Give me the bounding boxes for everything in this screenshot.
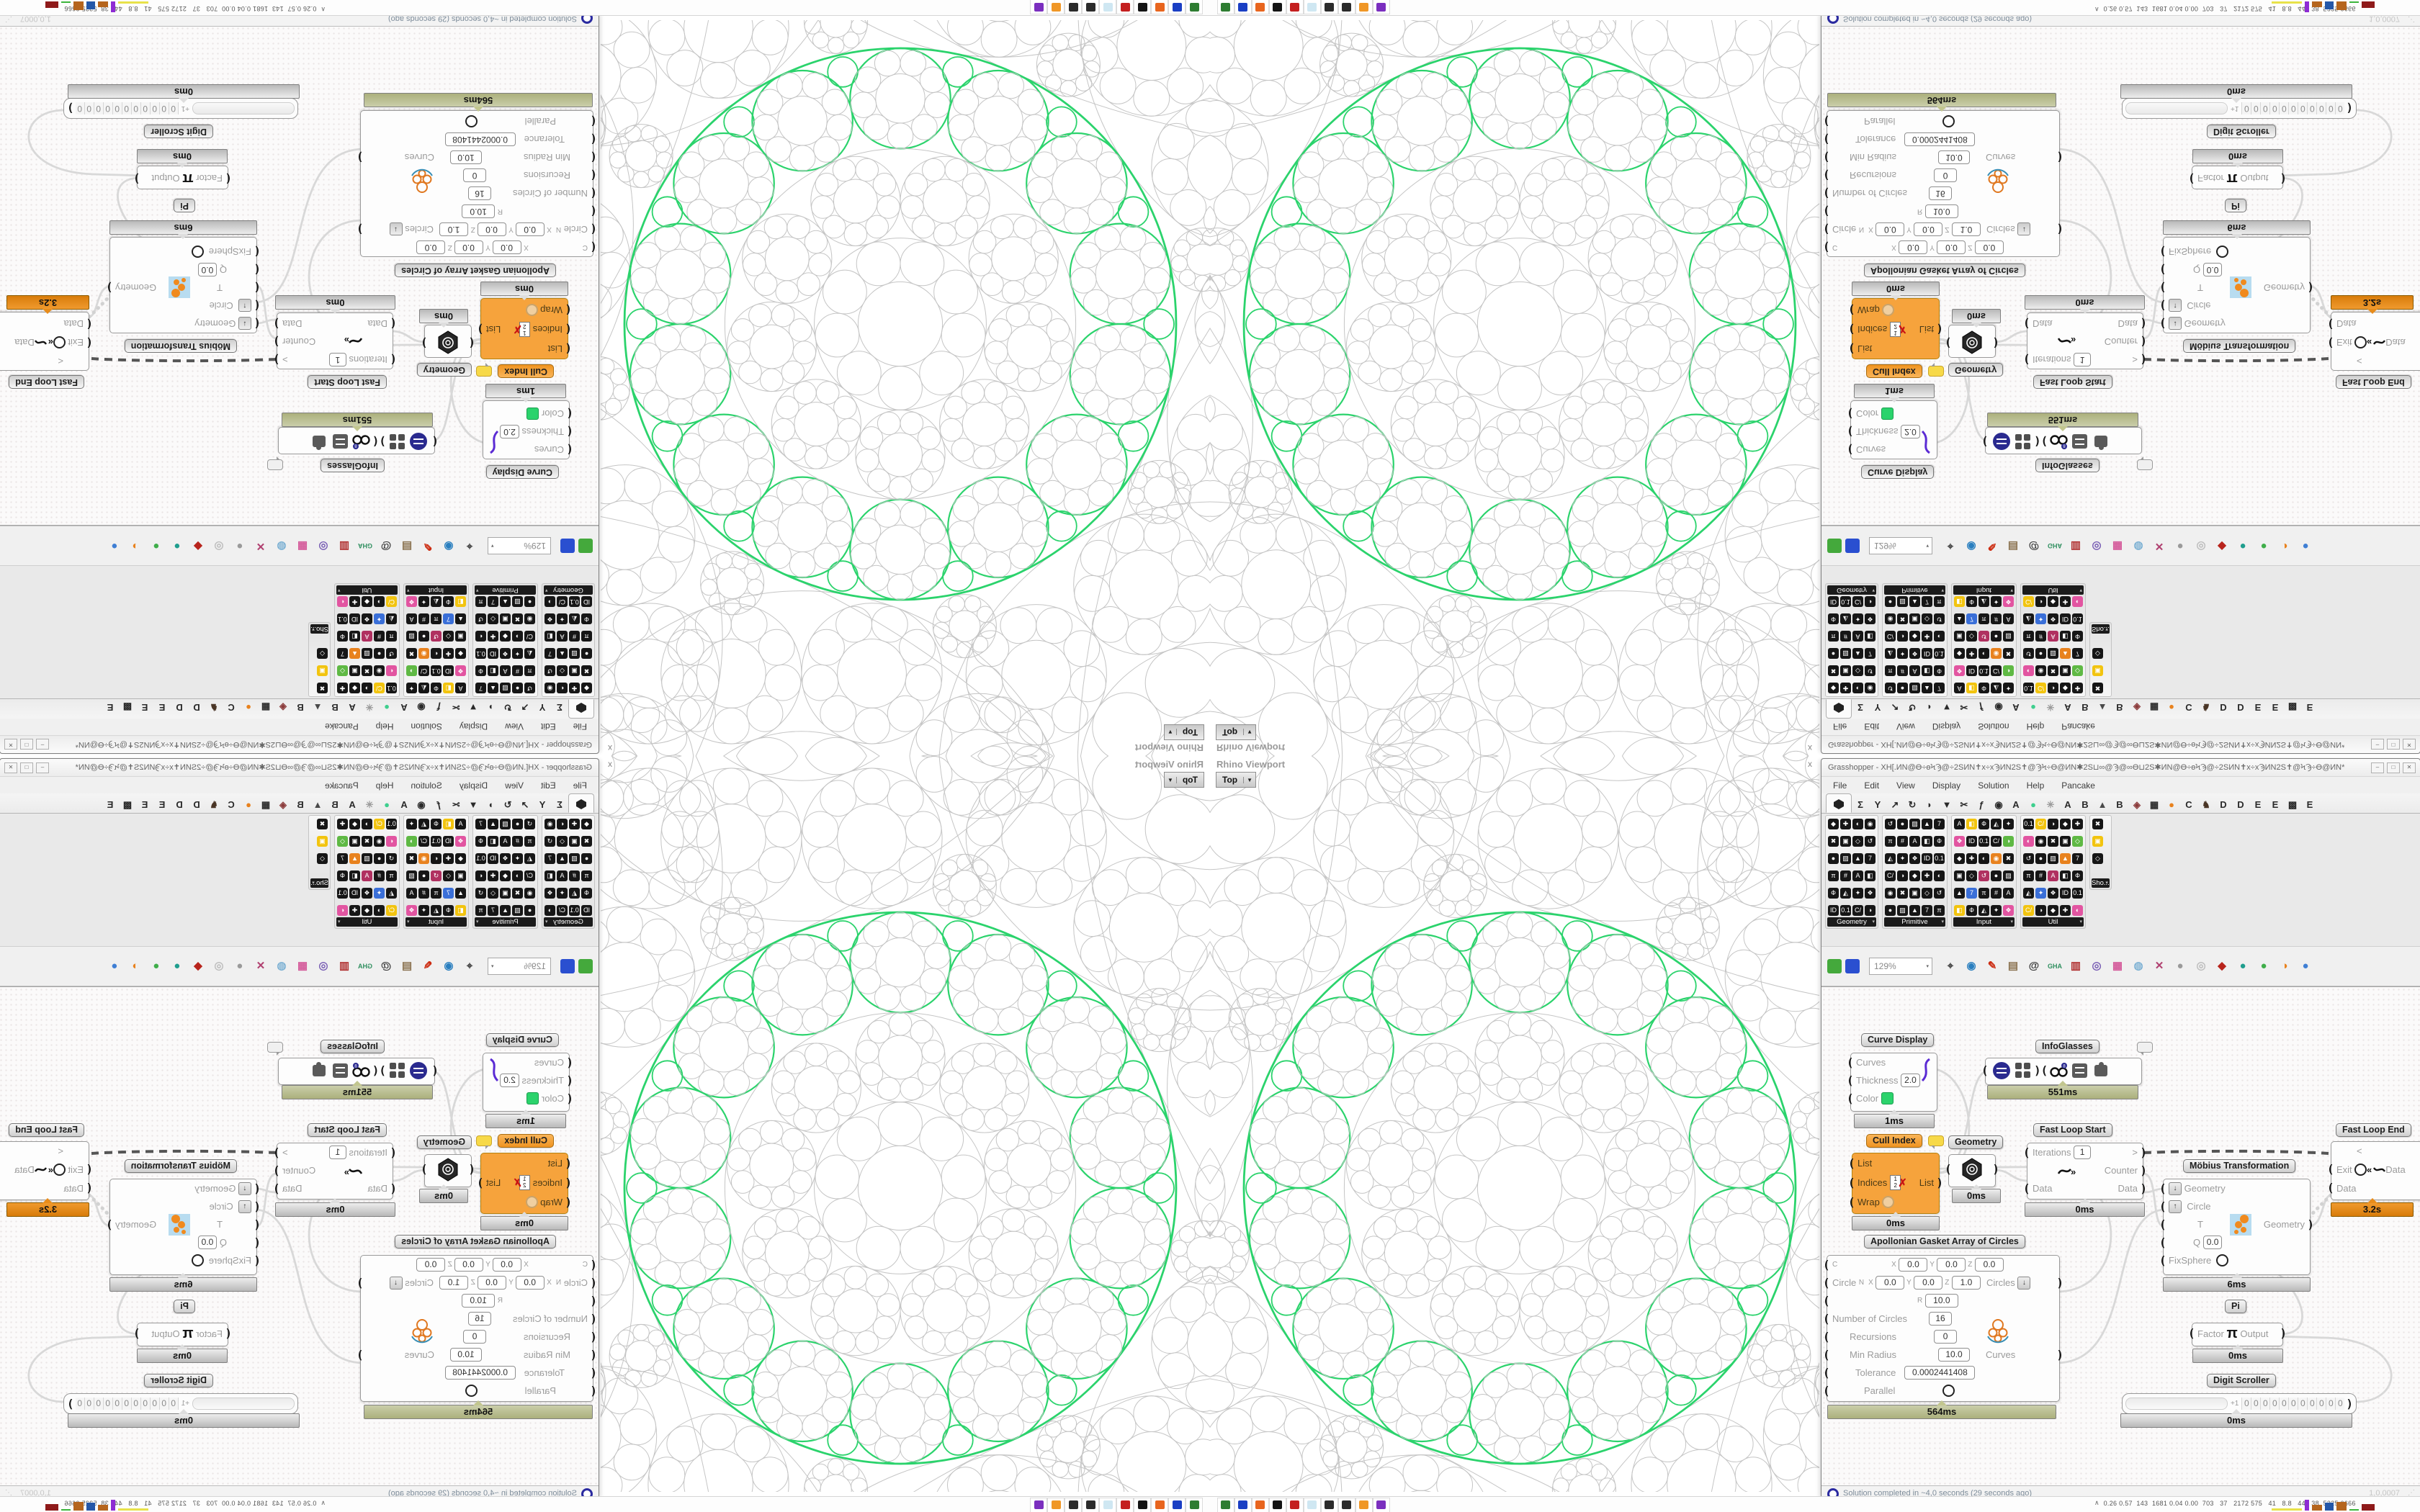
component-icon[interactable]: ID bbox=[349, 613, 360, 624]
component-icon[interactable]: ▣ bbox=[500, 888, 511, 899]
toolbar-icon-17[interactable]: ● bbox=[2297, 537, 2314, 554]
component-icon[interactable]: # bbox=[569, 631, 580, 642]
component-icon[interactable]: Ф bbox=[2072, 870, 2083, 881]
thickness-field[interactable]: 2.0 bbox=[1901, 1074, 1920, 1087]
taskbar-app-button[interactable] bbox=[1030, 1498, 1047, 1512]
tab-3[interactable]: ↗ bbox=[516, 699, 534, 715]
node-label-infoglasses[interactable]: InfoGlasses bbox=[2035, 459, 2099, 472]
component-icon[interactable]: Ф bbox=[475, 665, 486, 676]
component-icon[interactable]: Ф bbox=[581, 888, 592, 899]
rhino-viewport[interactable]: Rhino Viewport x Top ▼ bbox=[601, 756, 1210, 1492]
component-icon[interactable]: ◇ bbox=[443, 870, 454, 881]
toolbar-icon-9[interactable]: ◍ bbox=[2130, 958, 2147, 975]
component-icon[interactable]: ✖ bbox=[362, 836, 372, 847]
component-icon[interactable]: ✖ bbox=[406, 648, 417, 659]
component-icon[interactable]: A bbox=[1852, 870, 1863, 881]
taskbar-app-button[interactable] bbox=[1134, 1498, 1151, 1512]
iterations-field[interactable]: 1 bbox=[2074, 353, 2091, 366]
node-fast-loop-start[interactable]: (Iterations 1 >) » Counter) (Data Data) bbox=[277, 312, 393, 369]
component-icon[interactable]: ◐ bbox=[337, 596, 348, 607]
tab-27[interactable]: E bbox=[2301, 699, 2318, 715]
component-icon[interactable]: ▨ bbox=[569, 853, 580, 864]
tab-19[interactable]: ● bbox=[2163, 699, 2180, 715]
component-icon[interactable]: ▣ bbox=[349, 836, 360, 847]
component-icon[interactable]: ✦ bbox=[1852, 613, 1863, 624]
component-icon[interactable]: ◭ bbox=[418, 683, 429, 693]
taskbar-app-button[interactable] bbox=[1116, 1498, 1134, 1512]
goggles-icon[interactable]: 8 bbox=[352, 433, 371, 451]
component-icon[interactable]: ◇ bbox=[1922, 888, 1932, 899]
component-icon[interactable]: ID bbox=[488, 853, 498, 864]
component-icon[interactable]: ◐ bbox=[475, 631, 486, 642]
toolbar-icon-2[interactable]: ✎ bbox=[1984, 537, 2001, 554]
component-icon[interactable]: # bbox=[569, 870, 580, 881]
digit-cell[interactable]: 0 bbox=[2326, 102, 2335, 114]
component-icon[interactable]: ✚ bbox=[1922, 870, 1932, 881]
component-icon[interactable]: 7 bbox=[337, 648, 348, 659]
digit-cell[interactable]: 0 bbox=[2288, 1398, 2298, 1410]
tab-1[interactable]: Σ bbox=[551, 699, 568, 715]
min-radius-field[interactable]: 10.0 bbox=[450, 150, 482, 164]
digit-cell[interactable]: 0 bbox=[2288, 102, 2298, 114]
menu-item-help[interactable]: Help bbox=[2027, 780, 2045, 791]
component-icon[interactable]: ✚ bbox=[569, 819, 580, 829]
close-button[interactable]: ✕ bbox=[2403, 739, 2416, 750]
component-icon[interactable]: ▲ bbox=[1954, 613, 1965, 624]
component-icon[interactable]: ◭ bbox=[1840, 888, 1851, 899]
minimize-button[interactable]: – bbox=[2371, 739, 2384, 750]
component-icon[interactable]: ◭ bbox=[2023, 888, 2034, 899]
component-icon[interactable]: 7 bbox=[1934, 683, 1945, 693]
toolbar-icon-12[interactable]: ◎ bbox=[2192, 537, 2210, 554]
component-icon[interactable]: ↺ bbox=[431, 631, 442, 642]
component-icon[interactable]: ▨ bbox=[406, 870, 417, 881]
open-file-icon[interactable] bbox=[578, 539, 593, 553]
component-icon[interactable]: ◭ bbox=[431, 905, 442, 916]
tab-2[interactable]: Y bbox=[534, 797, 551, 813]
toolbar-icon-14[interactable]: ● bbox=[2234, 537, 2251, 554]
component-icon[interactable]: ✖ bbox=[1897, 613, 1908, 624]
digit-cell[interactable]: 0 bbox=[94, 1398, 104, 1410]
cz-field[interactable]: 0.0 bbox=[1975, 1258, 2004, 1272]
palette-group-label[interactable]: Input▾ bbox=[405, 917, 467, 927]
tab-1[interactable]: Σ bbox=[1852, 699, 1869, 715]
tab-17[interactable]: ◈ bbox=[2128, 797, 2146, 813]
component-icon[interactable]: ✖ bbox=[1897, 888, 1908, 899]
puzzle-icon[interactable] bbox=[309, 433, 328, 451]
component-icon[interactable]: ◆ bbox=[500, 631, 511, 642]
exit-toggle[interactable] bbox=[53, 1164, 66, 1176]
component-icon[interactable]: ID bbox=[2060, 888, 2071, 899]
tab-17[interactable]: ◈ bbox=[2128, 699, 2146, 715]
component-icon[interactable]: ❖ bbox=[1909, 648, 1920, 659]
digit-cell[interactable]: 0 bbox=[160, 102, 169, 114]
tab-0[interactable] bbox=[1826, 793, 1852, 813]
view-selector-button[interactable]: Top ▼ bbox=[1216, 724, 1256, 740]
tab-0[interactable] bbox=[568, 793, 594, 813]
palette-group-label[interactable]: Geometry▾ bbox=[544, 585, 593, 595]
component-icon[interactable]: ▣ bbox=[455, 870, 466, 881]
component-icon[interactable]: ◇ bbox=[488, 888, 498, 899]
taskbar-app-button[interactable] bbox=[1047, 0, 1065, 14]
node-label-mobius[interactable]: Möbius Transformation bbox=[125, 339, 237, 353]
component-icon[interactable]: ❖ bbox=[544, 613, 555, 624]
component-icon[interactable]: ● bbox=[374, 648, 385, 659]
color-swatch[interactable] bbox=[526, 408, 539, 420]
component-icon[interactable]: ✖ bbox=[512, 888, 523, 899]
info-disc-icon[interactable] bbox=[409, 1061, 428, 1080]
toolbar-icon-10[interactable]: ✕ bbox=[2151, 537, 2168, 554]
component-icon[interactable]: ▲ bbox=[488, 819, 498, 829]
taskbar-app-button[interactable] bbox=[1373, 0, 1390, 14]
component-icon[interactable]: ID bbox=[581, 596, 592, 607]
component-icon[interactable]: 7 bbox=[1922, 596, 1932, 607]
toolbar-icon-7[interactable]: ◎ bbox=[2088, 537, 2105, 554]
component-icon[interactable]: ◑ bbox=[2048, 683, 2058, 693]
goggles-icon[interactable]: 8 bbox=[352, 1061, 371, 1080]
component-icon[interactable]: ▨ bbox=[362, 648, 372, 659]
taskbar-app-button[interactable] bbox=[1065, 1498, 1082, 1512]
component-icon[interactable]: # bbox=[2035, 631, 2046, 642]
component-icon[interactable]: ◭ bbox=[569, 888, 580, 899]
exit-toggle[interactable] bbox=[53, 337, 66, 349]
component-icon[interactable]: ✦ bbox=[512, 648, 523, 659]
component-icon[interactable]: 7 bbox=[1966, 888, 1977, 899]
cx-field[interactable]: 0.0 bbox=[493, 1258, 521, 1272]
component-icon[interactable]: ◐ bbox=[2072, 596, 2083, 607]
component-icon[interactable]: ◉ bbox=[418, 648, 429, 659]
node-curve-display[interactable]: (Curves (Thickness 2.0 (Color bbox=[483, 400, 570, 459]
component-icon[interactable]: A bbox=[406, 613, 417, 624]
node-pi[interactable]: (Factor π Output) bbox=[137, 1323, 228, 1346]
digit-cell[interactable]: 0 bbox=[104, 102, 113, 114]
component-icon[interactable]: ▨ bbox=[1840, 853, 1851, 864]
wrap-toggle[interactable] bbox=[526, 1196, 538, 1208]
menu-item-file[interactable]: File bbox=[1833, 780, 1847, 791]
toolbar-icon-5[interactable]: GHA bbox=[2046, 958, 2063, 975]
node-label-geometry[interactable]: Geometry bbox=[417, 363, 472, 377]
component-icon[interactable]: π bbox=[431, 613, 442, 624]
node-label-curve-display[interactable]: Curve Display bbox=[486, 1033, 559, 1047]
component-icon[interactable]: ● bbox=[1897, 819, 1908, 829]
node-label-cull-index[interactable]: Cull Index bbox=[498, 364, 554, 378]
node-label-curve-display[interactable]: Curve Display bbox=[1861, 465, 1934, 479]
component-icon[interactable]: ✚ bbox=[349, 905, 360, 916]
component-icon[interactable]: ◐ bbox=[386, 665, 397, 676]
digit-cell[interactable]: 0 bbox=[2269, 102, 2279, 114]
component-icon[interactable]: ● bbox=[1885, 596, 1896, 607]
component-icon[interactable]: C/ bbox=[374, 683, 385, 693]
component-icon[interactable]: ▣ bbox=[1909, 613, 1920, 624]
zoom-input[interactable]: 129%▾ bbox=[488, 537, 551, 554]
component-icon[interactable]: ◐ bbox=[431, 648, 442, 659]
arrow-down-button[interactable]: ↓ bbox=[238, 318, 251, 330]
component-icon[interactable]: ◑ bbox=[544, 905, 555, 916]
component-icon[interactable]: π bbox=[1934, 596, 1945, 607]
tab-18[interactable]: ▦ bbox=[2146, 797, 2163, 813]
menu-item-solution[interactable]: Solution bbox=[411, 780, 442, 791]
component-icon[interactable]: ◑ bbox=[1865, 596, 1875, 607]
component-icon[interactable]: ID bbox=[443, 836, 454, 847]
component-icon[interactable]: ◑ bbox=[2035, 905, 2046, 916]
component-icon[interactable]: ▲ bbox=[455, 888, 466, 899]
component-icon[interactable]: 0.1 bbox=[431, 836, 442, 847]
taskbar-app-button[interactable] bbox=[1186, 1498, 1203, 1512]
component-icon[interactable]: # bbox=[418, 613, 429, 624]
tab-3[interactable]: ↗ bbox=[1886, 797, 1904, 813]
taskbar-app-button[interactable] bbox=[1082, 0, 1099, 14]
component-icon[interactable]: Ф bbox=[443, 596, 454, 607]
component-icon[interactable]: A bbox=[557, 870, 568, 881]
component-icon[interactable]: Ф bbox=[1978, 819, 1989, 829]
palette-group-label[interactable]: Util▾ bbox=[336, 585, 398, 595]
component-icon[interactable]: ◧ bbox=[1954, 596, 1965, 607]
component-icon[interactable]: 0.1 bbox=[475, 853, 486, 864]
toolbar-icon-5[interactable]: GHA bbox=[357, 958, 374, 975]
component-icon[interactable]: ● bbox=[524, 596, 535, 607]
component-icon[interactable]: ❖ bbox=[544, 888, 555, 899]
rhino-viewport[interactable]: Rhino Viewport x Top ▼ bbox=[1210, 756, 1819, 1492]
parallel-toggle[interactable] bbox=[465, 115, 478, 127]
chevron-up-icon[interactable]: ∧ bbox=[2094, 1499, 2099, 1507]
digit-cell[interactable]: 0 bbox=[2260, 1398, 2269, 1410]
component-icon[interactable]: 7 bbox=[475, 683, 486, 693]
tab-19[interactable]: ● bbox=[240, 699, 257, 715]
component-icon[interactable]: ◐ bbox=[2072, 905, 2083, 916]
menu-item-display[interactable]: Display bbox=[1932, 780, 1960, 791]
tab-12[interactable]: ✳ bbox=[361, 699, 378, 715]
component-icon[interactable]: ✦ bbox=[1897, 853, 1908, 864]
component-icon[interactable]: A bbox=[1852, 631, 1863, 642]
component-icon[interactable]: C/ bbox=[1885, 631, 1896, 642]
digit-cell[interactable]: 0 bbox=[113, 1398, 122, 1410]
node-label-fast-loop-end[interactable]: Fast Loop End bbox=[9, 375, 84, 389]
digit-cell[interactable]: 0 bbox=[76, 1398, 85, 1410]
component-icon[interactable]: ◐ bbox=[1852, 683, 1863, 693]
component-icon[interactable]: ✦ bbox=[1991, 596, 2002, 607]
view-selector-button[interactable]: Top ▼ bbox=[1164, 724, 1204, 740]
tab-13[interactable]: A bbox=[344, 699, 361, 715]
component-icon[interactable]: ID bbox=[1922, 853, 1932, 864]
component-icon[interactable]: ▣ bbox=[1840, 836, 1851, 847]
digit-cell[interactable]: 0 bbox=[160, 1398, 169, 1410]
component-icon[interactable]: π bbox=[1978, 888, 1989, 899]
component-icon[interactable]: ● bbox=[1828, 853, 1839, 864]
cz-field[interactable]: 0.0 bbox=[1975, 240, 2004, 254]
component-icon[interactable]: A bbox=[500, 836, 511, 847]
recursions-field[interactable]: 0 bbox=[463, 1330, 486, 1344]
chevron-up-icon[interactable]: ∧ bbox=[321, 5, 326, 13]
component-icon[interactable]: ◆ bbox=[1909, 631, 1920, 642]
menu-item-help[interactable]: Help bbox=[376, 780, 394, 791]
parallel-toggle[interactable] bbox=[1942, 1385, 1955, 1397]
component-icon[interactable]: C/ bbox=[1991, 836, 2002, 847]
q-field[interactable]: 0.0 bbox=[198, 263, 218, 276]
component-icon[interactable]: ◉ bbox=[524, 613, 535, 624]
digit-cell[interactable]: 0 bbox=[85, 1398, 94, 1410]
taskbar-app-button[interactable] bbox=[1269, 0, 1286, 14]
toolbar-icon-16[interactable]: ◑ bbox=[2276, 958, 2293, 975]
component-icon[interactable]: 7 bbox=[443, 888, 454, 899]
tab-9[interactable]: ◉ bbox=[413, 797, 430, 813]
info-disc-icon[interactable] bbox=[1992, 1061, 2011, 1080]
component-icon[interactable]: ◧ bbox=[544, 631, 555, 642]
palette-group-label[interactable]: Util▾ bbox=[336, 917, 398, 927]
tab-7[interactable]: ✂ bbox=[447, 699, 465, 715]
node-fast-loop-end[interactable]: < (Exit « Data) (Data bbox=[2331, 312, 2420, 371]
info-disc-icon[interactable] bbox=[1992, 433, 2011, 451]
component-icon[interactable]: ◇ bbox=[317, 648, 328, 659]
palette-group-label[interactable]: Input▾ bbox=[1953, 917, 2015, 927]
component-icon[interactable]: 0.1 bbox=[475, 648, 486, 659]
component-icon[interactable]: ↺ bbox=[524, 683, 535, 693]
node-cull-index[interactable]: (List (Indices 12 ✗ List) (Wrap bbox=[480, 298, 568, 359]
component-icon[interactable]: ✚ bbox=[2072, 819, 2083, 829]
node-geometry-param[interactable]: ( ) bbox=[424, 325, 472, 358]
component-icon[interactable]: ◉ bbox=[544, 819, 555, 829]
titlebar[interactable]: Grasshopper - XH[.ИN@Ө÷өϞϠ@÷2SИN✝x÷xϠИN2… bbox=[1821, 735, 2420, 753]
tab-12[interactable]: ✳ bbox=[2042, 699, 2059, 715]
tab-4[interactable]: ↻ bbox=[1904, 797, 1921, 813]
tab-5[interactable]: ◗ bbox=[482, 699, 499, 715]
node-label-fast-loop-start[interactable]: Fast Loop Start bbox=[2033, 375, 2112, 389]
titlebar[interactable]: Grasshopper - XH[.ИN@Ө÷өϞϠ@÷2SИN✝x÷xϠИN2… bbox=[0, 759, 599, 777]
component-icon[interactable]: ◧ bbox=[544, 870, 555, 881]
component-icon[interactable]: Ф bbox=[581, 613, 592, 624]
taskbar-app-button[interactable] bbox=[1134, 0, 1151, 14]
open-file-icon[interactable] bbox=[1827, 539, 1842, 553]
component-icon[interactable]: ◧ bbox=[455, 596, 466, 607]
component-icon[interactable]: ▣ bbox=[1840, 665, 1851, 676]
component-icon[interactable]: ◐ bbox=[557, 819, 568, 829]
menu-item-view[interactable]: View bbox=[1896, 780, 1915, 791]
component-icon[interactable]: ● bbox=[581, 853, 592, 864]
toolbar-icon-6[interactable]: ▥ bbox=[336, 958, 353, 975]
tab-27[interactable]: E bbox=[102, 797, 119, 813]
component-icon[interactable]: ◆ bbox=[362, 905, 372, 916]
tab-15[interactable]: ▲ bbox=[2094, 699, 2111, 715]
taskbar-app-button[interactable] bbox=[1082, 1498, 1099, 1512]
toolbar-icon-12[interactable]: ◎ bbox=[210, 537, 228, 554]
toolbar-icon-14[interactable]: ● bbox=[169, 958, 186, 975]
component-icon[interactable]: ◉ bbox=[544, 683, 555, 693]
tab-0[interactable] bbox=[1826, 699, 1852, 719]
component-icon[interactable]: ◇ bbox=[557, 836, 568, 847]
component-icon[interactable]: ▨ bbox=[406, 631, 417, 642]
component-icon[interactable]: Ф bbox=[337, 870, 348, 881]
component-icon[interactable]: ID bbox=[581, 905, 592, 916]
component-icon[interactable]: ◑ bbox=[2035, 596, 2046, 607]
menu-item-file[interactable]: File bbox=[573, 722, 587, 732]
tab-0[interactable] bbox=[568, 699, 594, 719]
tab-11[interactable]: ● bbox=[2025, 797, 2042, 813]
component-icon[interactable]: ↺ bbox=[544, 665, 555, 676]
component-icon[interactable]: π bbox=[581, 631, 592, 642]
toolbar-icon-0[interactable]: ⌖ bbox=[1942, 958, 1959, 975]
node-fast-loop-start[interactable]: (Iterations 1 >) » Counter) (Data Data) bbox=[277, 1143, 393, 1200]
palette-group-label[interactable]: Sho...▾ bbox=[2092, 878, 2110, 888]
canvas[interactable]: Curve Display (Curves (Thickness 2.0 (Co… bbox=[1821, 27, 2420, 526]
component-icon[interactable]: π bbox=[1828, 631, 1839, 642]
cx-field[interactable]: 0.0 bbox=[1899, 1258, 1927, 1272]
component-icon[interactable]: 7 bbox=[1865, 853, 1875, 864]
toolbar-icon-12[interactable]: ◎ bbox=[2192, 958, 2210, 975]
component-icon[interactable]: ID bbox=[1828, 905, 1839, 916]
tab-7[interactable]: ✂ bbox=[447, 797, 465, 813]
menu-item-display[interactable]: Display bbox=[460, 722, 488, 732]
toolbar-icon-0[interactable]: ⌖ bbox=[461, 537, 478, 554]
component-icon[interactable]: ▨ bbox=[512, 905, 523, 916]
num-circles-field[interactable]: 16 bbox=[1929, 186, 1952, 200]
taskbar-app-button[interactable] bbox=[1151, 1498, 1168, 1512]
component-icon[interactable]: # bbox=[374, 870, 385, 881]
node-fast-loop-start[interactable]: (Iterations 1 >) » Counter) (Data Data) bbox=[2027, 312, 2143, 369]
digit-cell[interactable]: 0 bbox=[2251, 102, 2260, 114]
component-icon[interactable]: ● bbox=[1991, 870, 2002, 881]
tab-5[interactable]: ◗ bbox=[1921, 699, 1938, 715]
component-icon[interactable]: ◭ bbox=[386, 613, 397, 624]
node-pi[interactable]: (Factor π Output) bbox=[137, 166, 228, 189]
node-label-geometry[interactable]: Geometry bbox=[1948, 1135, 2003, 1149]
arrow-up-button[interactable]: ↑ bbox=[238, 1200, 251, 1213]
taskbar-app-button[interactable] bbox=[1304, 0, 1321, 14]
component-icon[interactable]: ◧ bbox=[455, 905, 466, 916]
toolbar-icon-15[interactable]: ● bbox=[2255, 958, 2272, 975]
taskbar-app-button[interactable] bbox=[1269, 1498, 1286, 1512]
toolbar-icon-0[interactable]: ⌖ bbox=[461, 958, 478, 975]
component-icon[interactable]: C/ bbox=[386, 905, 397, 916]
component-icon[interactable]: π bbox=[1885, 665, 1896, 676]
component-icon[interactable]: ◉ bbox=[1991, 853, 2002, 864]
component-icon[interactable]: ◐ bbox=[2023, 665, 2034, 676]
node-label-geometry[interactable]: Geometry bbox=[417, 1135, 472, 1149]
num-circles-field[interactable]: 16 bbox=[1929, 1312, 1952, 1326]
tab-20[interactable]: C bbox=[223, 699, 240, 715]
node-label-apollonian[interactable]: Apollonian Gasket Array of Circles bbox=[395, 264, 556, 277]
tab-9[interactable]: ◉ bbox=[1990, 797, 2007, 813]
toolbar-icon-10[interactable]: ✕ bbox=[252, 537, 269, 554]
component-icon[interactable]: π bbox=[1978, 613, 1989, 624]
component-icon[interactable]: A bbox=[362, 631, 372, 642]
toolbar-icon-13[interactable]: ◆ bbox=[2213, 537, 2231, 554]
component-icon[interactable]: ✦ bbox=[2035, 613, 2046, 624]
wrap-toggle[interactable] bbox=[526, 304, 538, 316]
component-icon[interactable]: ▨ bbox=[2048, 853, 2058, 864]
component-icon[interactable]: ▣ bbox=[349, 665, 360, 676]
canvas[interactable]: Curve Display (Curves (Thickness 2.0 (Co… bbox=[1821, 986, 2420, 1485]
grid-icon[interactable] bbox=[2014, 1061, 2033, 1080]
digit-cell[interactable]: 0 bbox=[132, 1398, 141, 1410]
r-field[interactable]: 10.0 bbox=[462, 204, 495, 218]
num-circles-field[interactable]: 16 bbox=[468, 1312, 491, 1326]
tab-19[interactable]: ● bbox=[240, 797, 257, 813]
component-icon[interactable]: 0.1 bbox=[337, 613, 348, 624]
arrow-up-button[interactable]: ↑ bbox=[238, 300, 251, 312]
toolbar-icon-16[interactable]: ◑ bbox=[127, 537, 144, 554]
toolbar-icon-6[interactable]: ▥ bbox=[336, 537, 353, 554]
component-icon[interactable]: ↺ bbox=[1978, 631, 1989, 642]
component-icon[interactable]: ✚ bbox=[1966, 648, 1977, 659]
toolbar-icon-3[interactable]: ▤ bbox=[398, 537, 416, 554]
taskbar-app-button[interactable] bbox=[1099, 0, 1116, 14]
component-icon[interactable]: ◉ bbox=[1885, 613, 1896, 624]
fixsphere-toggle[interactable] bbox=[192, 246, 204, 258]
component-icon[interactable]: ✚ bbox=[443, 648, 454, 659]
cy-field[interactable]: 0.0 bbox=[1937, 240, 1966, 254]
tab-21[interactable]: ♞ bbox=[2197, 699, 2215, 715]
component-icon[interactable]: ❖ bbox=[406, 596, 417, 607]
component-icon[interactable]: ◆ bbox=[1909, 870, 1920, 881]
